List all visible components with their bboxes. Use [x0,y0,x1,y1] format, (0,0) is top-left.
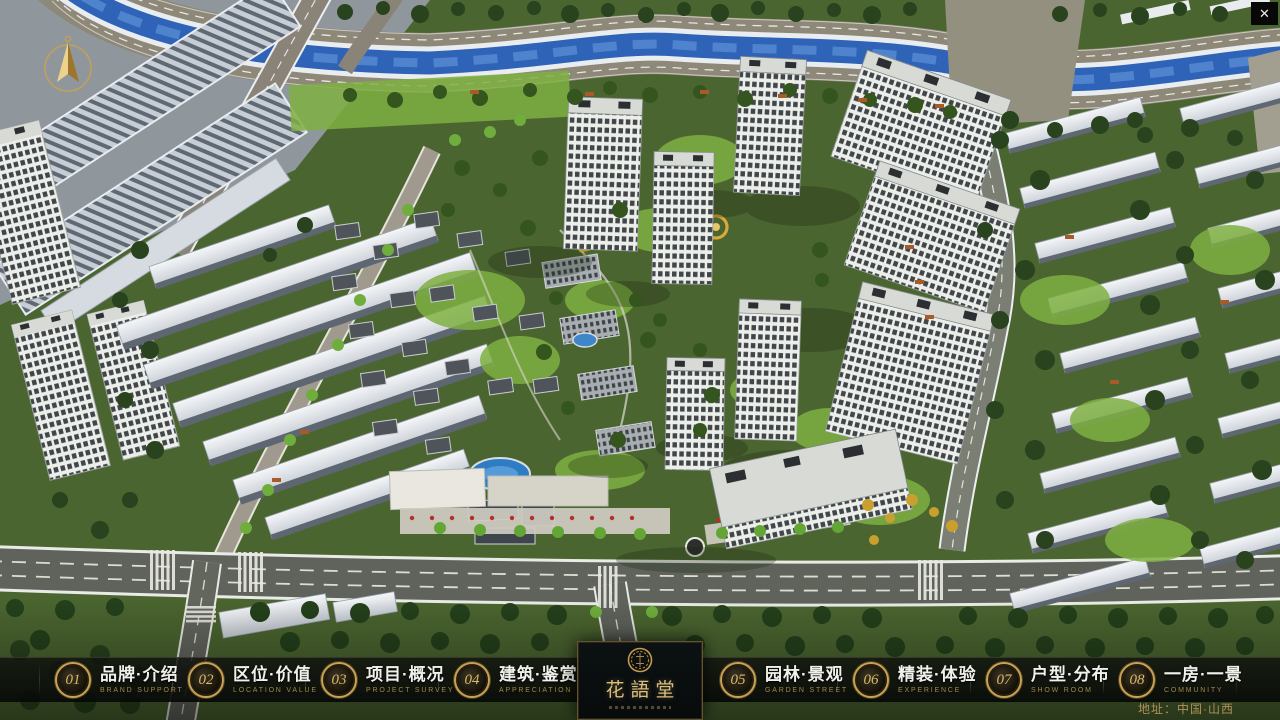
close-button[interactable]: ✕ [1251,2,1278,25]
nav-label-en: GARDEN STREET [765,687,848,694]
nav-label-en: APPRECIATION [499,687,578,694]
nav-label-en: PROJECT SURVEY [366,687,454,694]
nav-number-badge: 03 [321,662,357,698]
nav-item-interior-experience[interactable]: 06 精装·体验 EXPERIENCE [853,662,977,698]
nav-label-zh: 户型·分布 [1031,666,1110,684]
nav-number-badge: 05 [720,662,756,698]
nav-label-zh: 建筑·鉴赏 [499,666,578,684]
nav-item-project-survey[interactable]: 03 项目·概况 PROJECT SURVEY [321,662,454,698]
logo-subtext-line [609,706,671,709]
nav-number-badge: 04 [454,662,490,698]
project-logo-panel[interactable]: 花語堂 [577,641,703,720]
nav-label-en: BRAND SUPPORT [100,687,184,694]
nav-label-zh: 精装·体验 [898,666,977,684]
nav-item-location-value[interactable]: 02 区位·价值 LOCATION VALUE [188,662,318,698]
nav-item-unit-layouts[interactable]: 07 户型·分布 SHOW ROOM [986,662,1110,698]
nav-label-en: LOCATION VALUE [233,687,318,694]
nav-label-zh: 一房·一景 [1164,666,1243,684]
nav-number-badge: 02 [188,662,224,698]
project-address-label: 地址：中国·山西 [1138,700,1234,717]
nav-item-room-views[interactable]: 08 一房·一景 COMMUNITY [1119,662,1243,698]
nav-divider [39,664,40,695]
nav-label-zh: 项目·概况 [366,666,454,684]
nav-label-zh: 园林·景观 [765,666,848,684]
nav-label-en: COMMUNITY [1164,687,1243,694]
nav-label-zh: 品牌·介绍 [100,666,184,684]
nav-number-badge: 08 [1119,662,1155,698]
presentation-root: ✕ 01 品牌·介绍 BRAND SUPPORT 02 区位·价值 LOCATI… [0,0,1280,720]
nav-item-brand-intro[interactable]: 01 品牌·介绍 BRAND SUPPORT [55,662,184,698]
nav-item-garden-landscape[interactable]: 05 园林·景观 GARDEN STREET [720,662,848,698]
nav-item-architecture[interactable]: 04 建筑·鉴赏 APPRECIATION [454,662,578,698]
nav-label-zh: 区位·价值 [233,666,318,684]
nav-number-badge: 01 [55,662,91,698]
masterplan-3d-viewport[interactable] [0,0,1280,720]
nav-number-badge: 06 [853,662,889,698]
nav-label-en: SHOW ROOM [1031,687,1110,694]
nav-label-en: EXPERIENCE [898,687,977,694]
logo-seal-icon [627,647,653,673]
project-name: 花語堂 [599,675,680,702]
nav-number-badge: 07 [986,662,1022,698]
